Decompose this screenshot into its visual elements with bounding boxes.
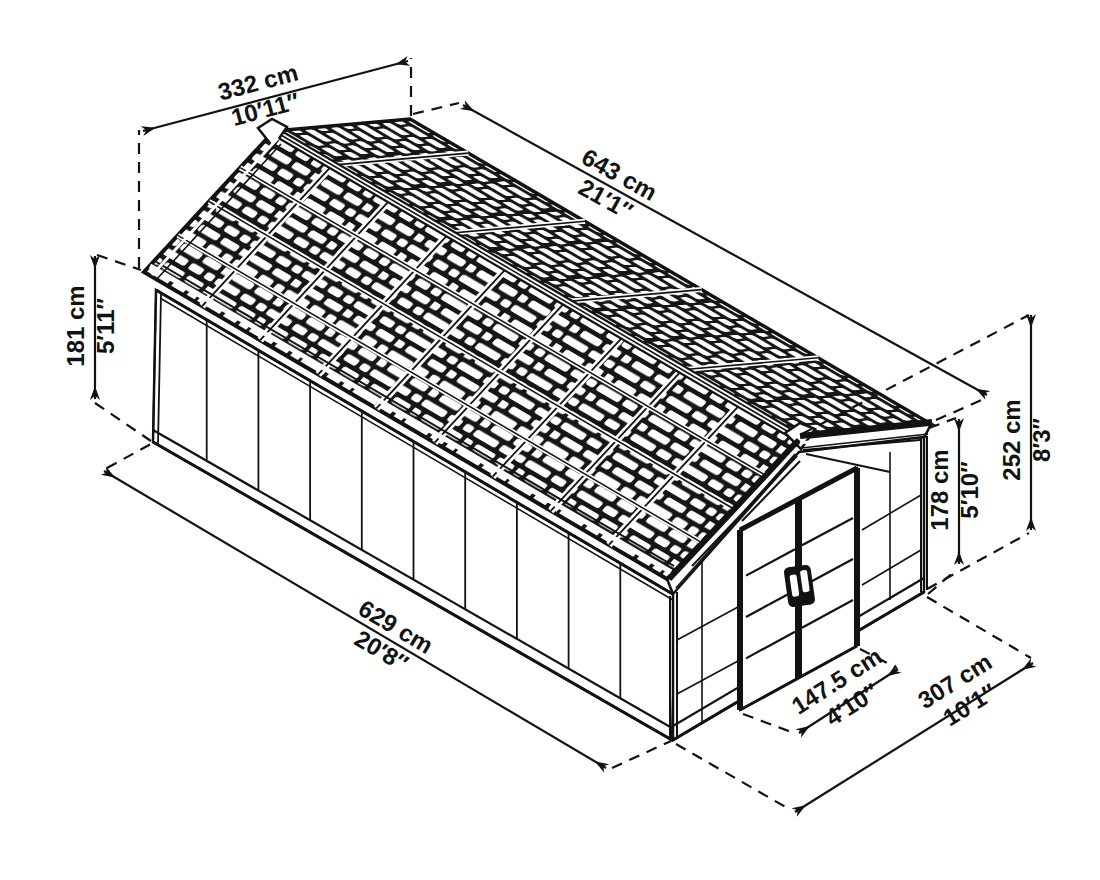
extension-line — [97, 255, 141, 270]
imperial-label: 5′11″ — [92, 298, 119, 354]
shed-dimension-diagram: 332 cm 10′11″ 643 cm 21′1″ 181 cm 5′11″ … — [0, 0, 1100, 880]
metric-label: 181 cm — [62, 285, 89, 366]
door-handle — [783, 564, 815, 607]
imperial-label: 8′3″ — [1028, 418, 1055, 462]
metric-label: 178 cm — [926, 449, 953, 530]
metric-label: 252 cm — [998, 399, 1025, 480]
extension-line — [107, 444, 151, 468]
shed-isometric-drawing — [144, 119, 932, 740]
extension-line — [929, 418, 956, 428]
extension-line — [612, 741, 671, 768]
extension-line — [676, 744, 789, 809]
extension-line — [928, 570, 956, 594]
extension-line — [936, 399, 984, 420]
extension-line — [95, 403, 151, 441]
diagram-canvas: 332 cm 10′11″ 643 cm 21′1″ 181 cm 5′11″ … — [0, 0, 1100, 880]
dimension-door-height: 178 cm 5′10″ — [926, 418, 983, 594]
extension-line — [743, 714, 794, 733]
imperial-label: 5′10″ — [956, 461, 983, 519]
dimension-eave-height: 181 cm 5′11″ — [62, 255, 151, 441]
extension-line — [413, 103, 459, 114]
